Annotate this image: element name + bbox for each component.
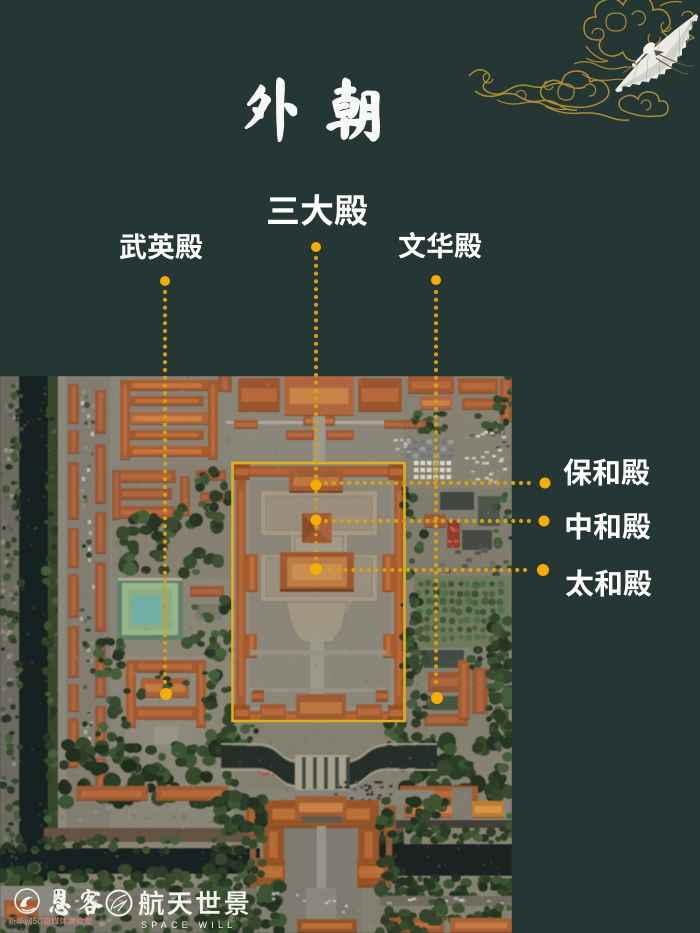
svg-text:SPACE WILL: SPACE WILL: [141, 920, 236, 930]
